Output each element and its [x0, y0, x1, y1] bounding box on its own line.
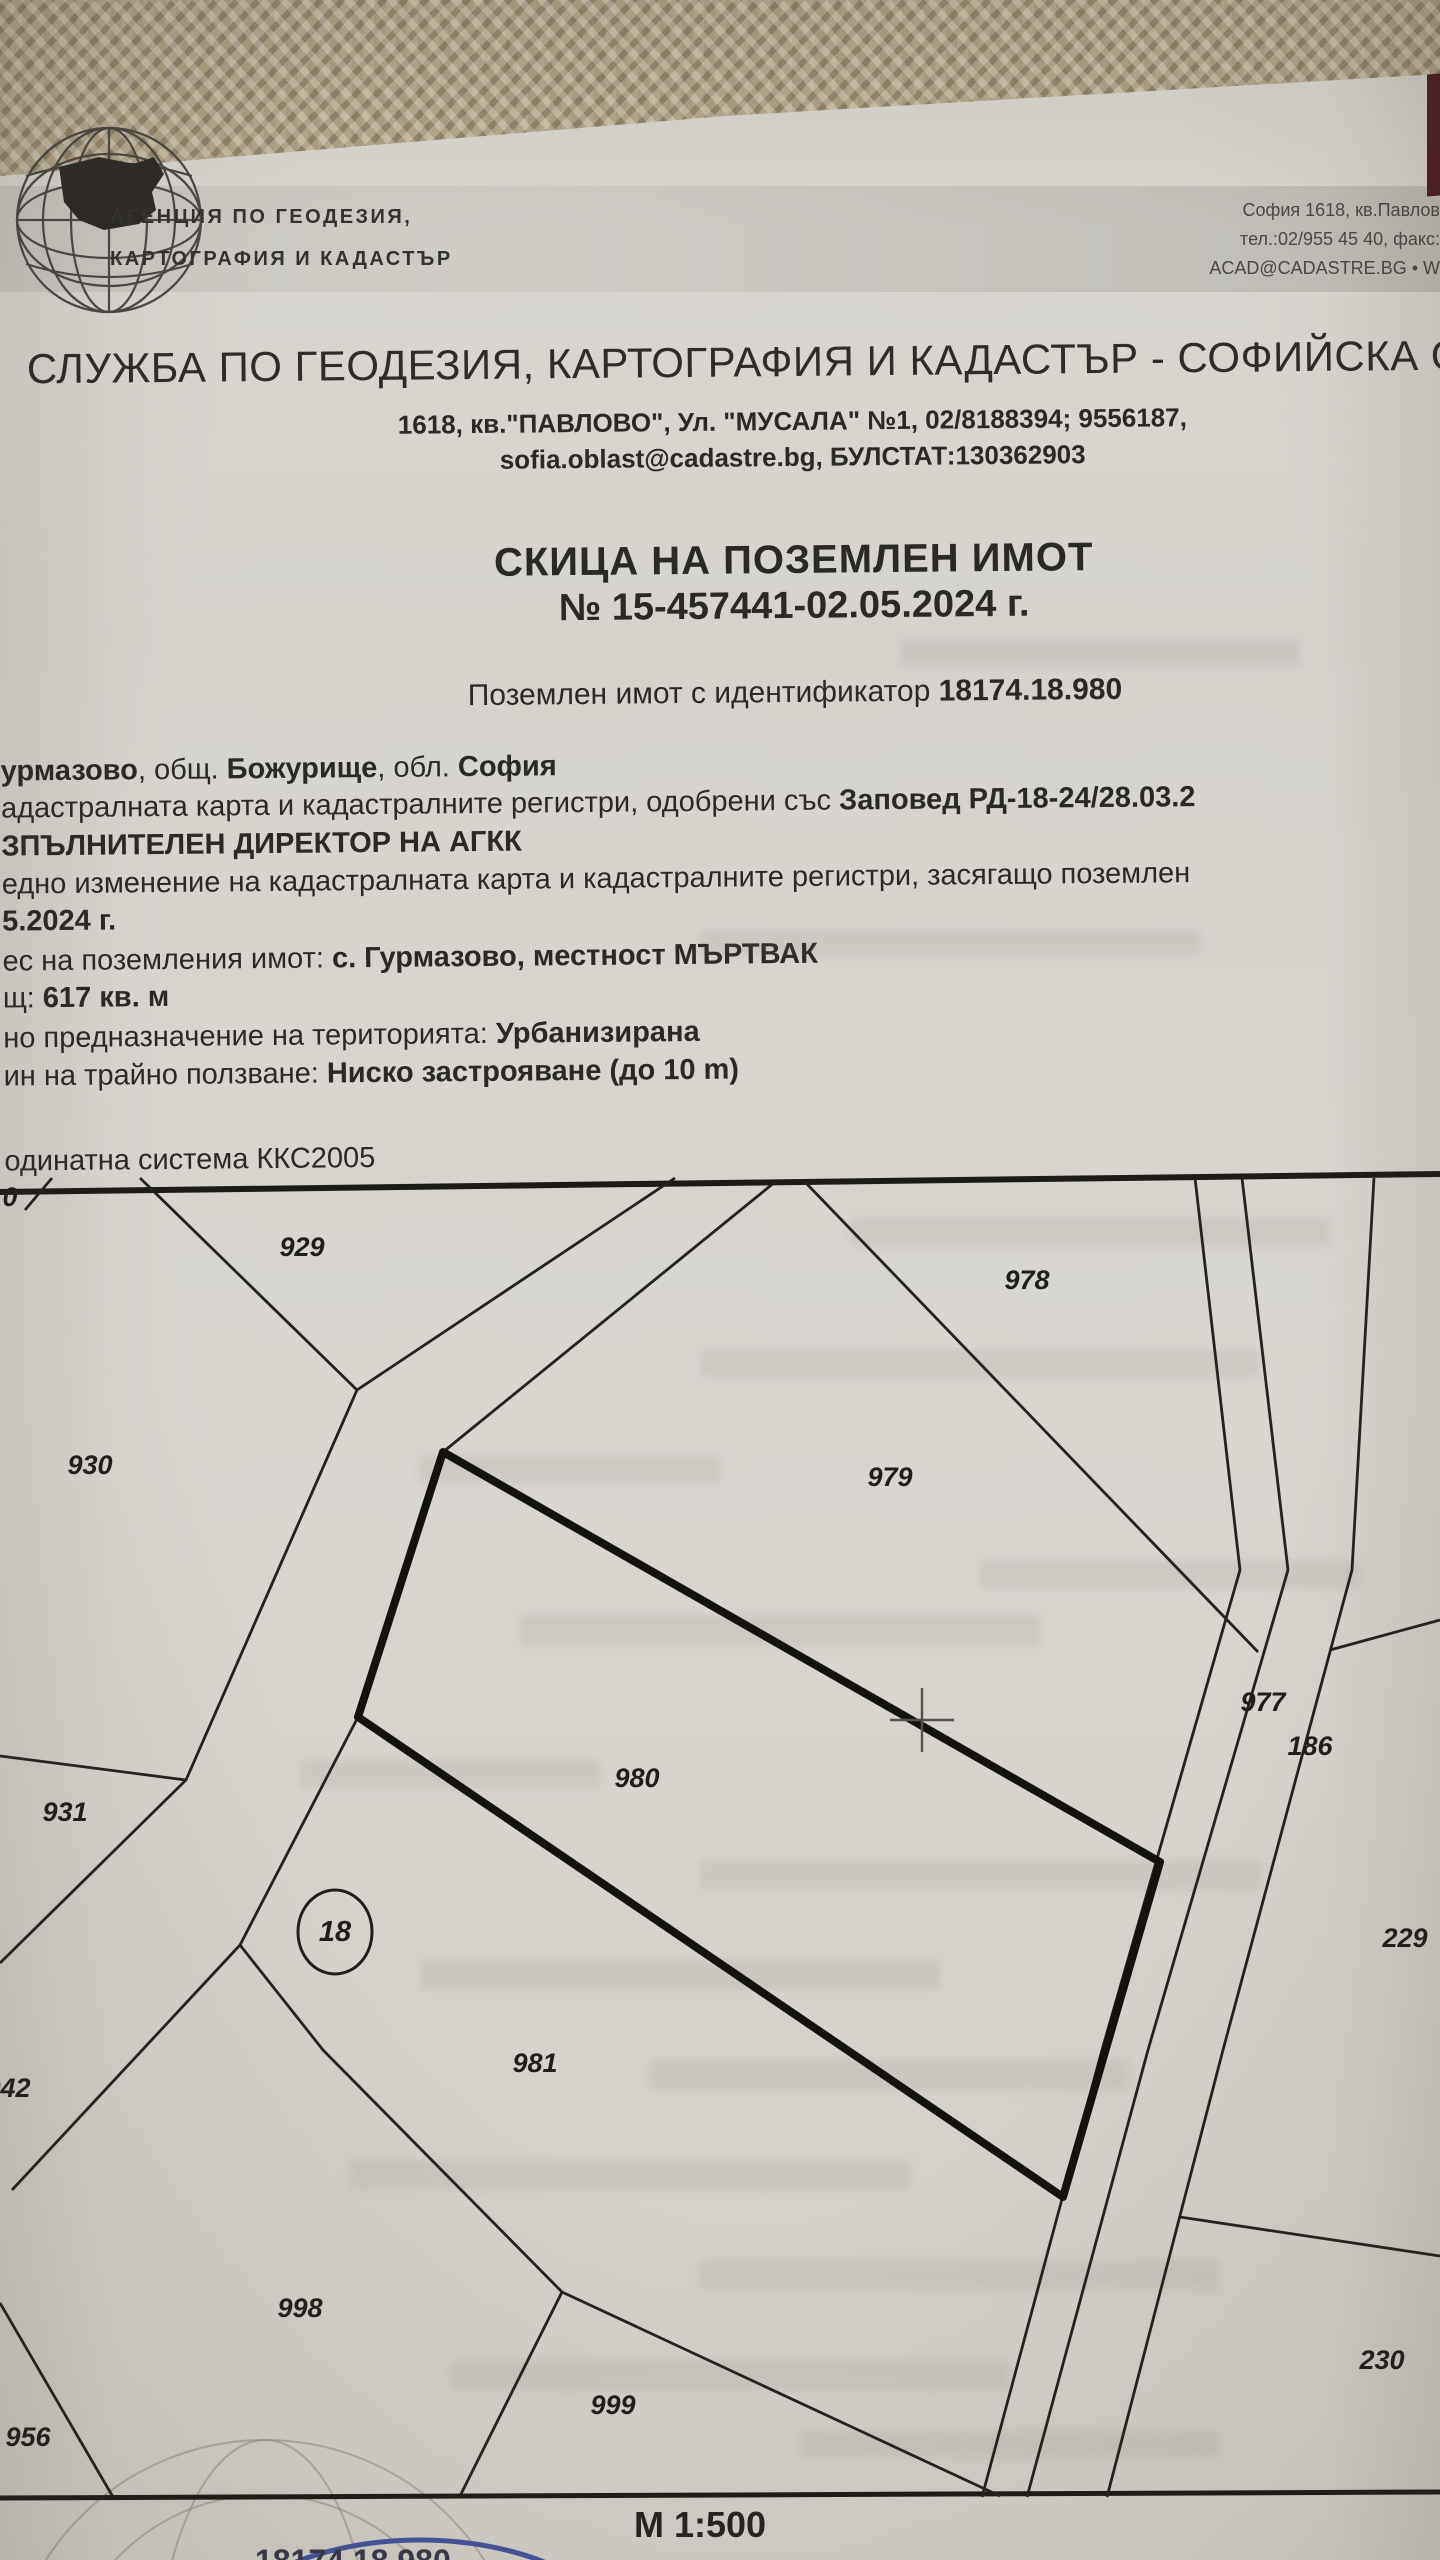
- photo-of-cadastral-sketch-document: АГЕНЦИЯ ПО ГЕОДЕЗИЯ, КАРТОГРАФИЯ И КАДАС…: [0, 0, 1440, 2560]
- parcel-label-942: 942: [0, 2073, 31, 2103]
- parcel-label-0: 0: [2, 1182, 17, 1212]
- cadastral-map-drawing: 18 0929978930979977186980931229981942998…: [0, 0, 1440, 2560]
- parcel-label-229: 229: [1381, 1923, 1427, 1953]
- parcel-label-978: 978: [1004, 1265, 1049, 1295]
- parcel-label-999: 999: [590, 2390, 635, 2420]
- parcel-label-186: 186: [1287, 1731, 1333, 1761]
- parcel-label-977: 977: [1240, 1687, 1287, 1717]
- parcel-label-930: 930: [67, 1450, 112, 1480]
- parcel-label-979: 979: [867, 1462, 912, 1492]
- parcel-label-956: 956: [5, 2422, 51, 2452]
- page-bleed-through-texture: [300, 640, 1360, 2458]
- parcel-label-929: 929: [279, 1232, 324, 1262]
- parcel-label-998: 998: [277, 2293, 322, 2323]
- parcel-label-981: 981: [512, 2048, 557, 2078]
- stamp-text-fragment: 18174.18.980: [255, 2543, 451, 2560]
- parcel-label-931: 931: [42, 1797, 87, 1827]
- map-scale-label: М 1:500: [634, 2504, 766, 2545]
- parcel-label-230: 230: [1358, 2345, 1404, 2375]
- cadastral-region-number: 18: [319, 1916, 352, 1948]
- parcel-label-980: 980: [614, 1763, 659, 1793]
